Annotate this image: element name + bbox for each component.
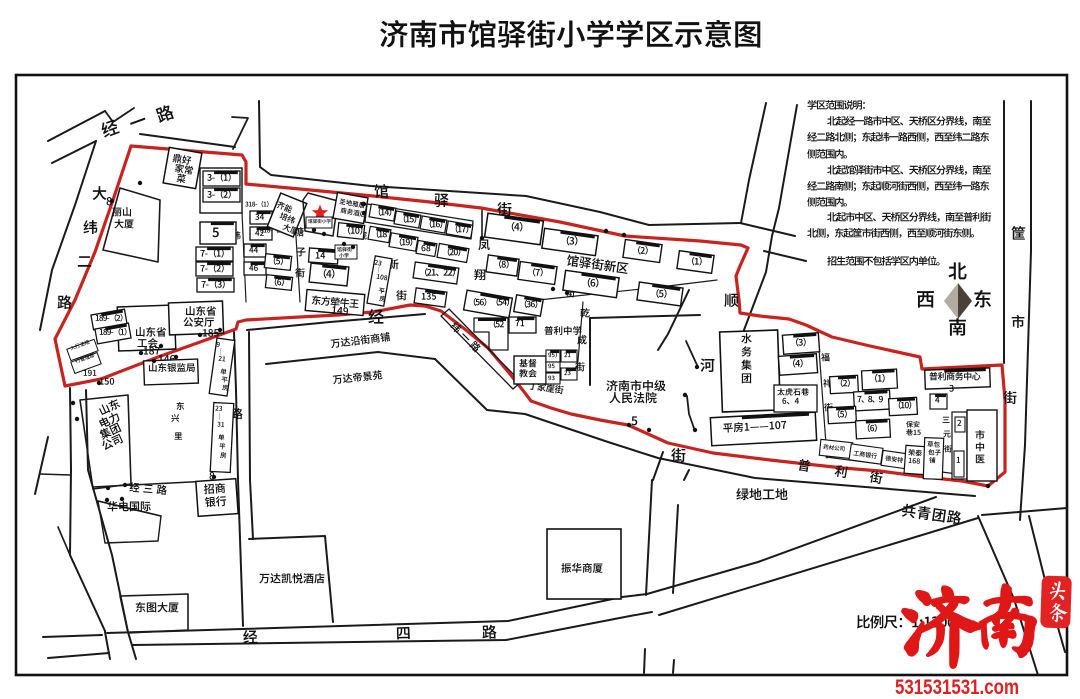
svg-text:531531531.com: 531531531.com	[895, 676, 1019, 699]
